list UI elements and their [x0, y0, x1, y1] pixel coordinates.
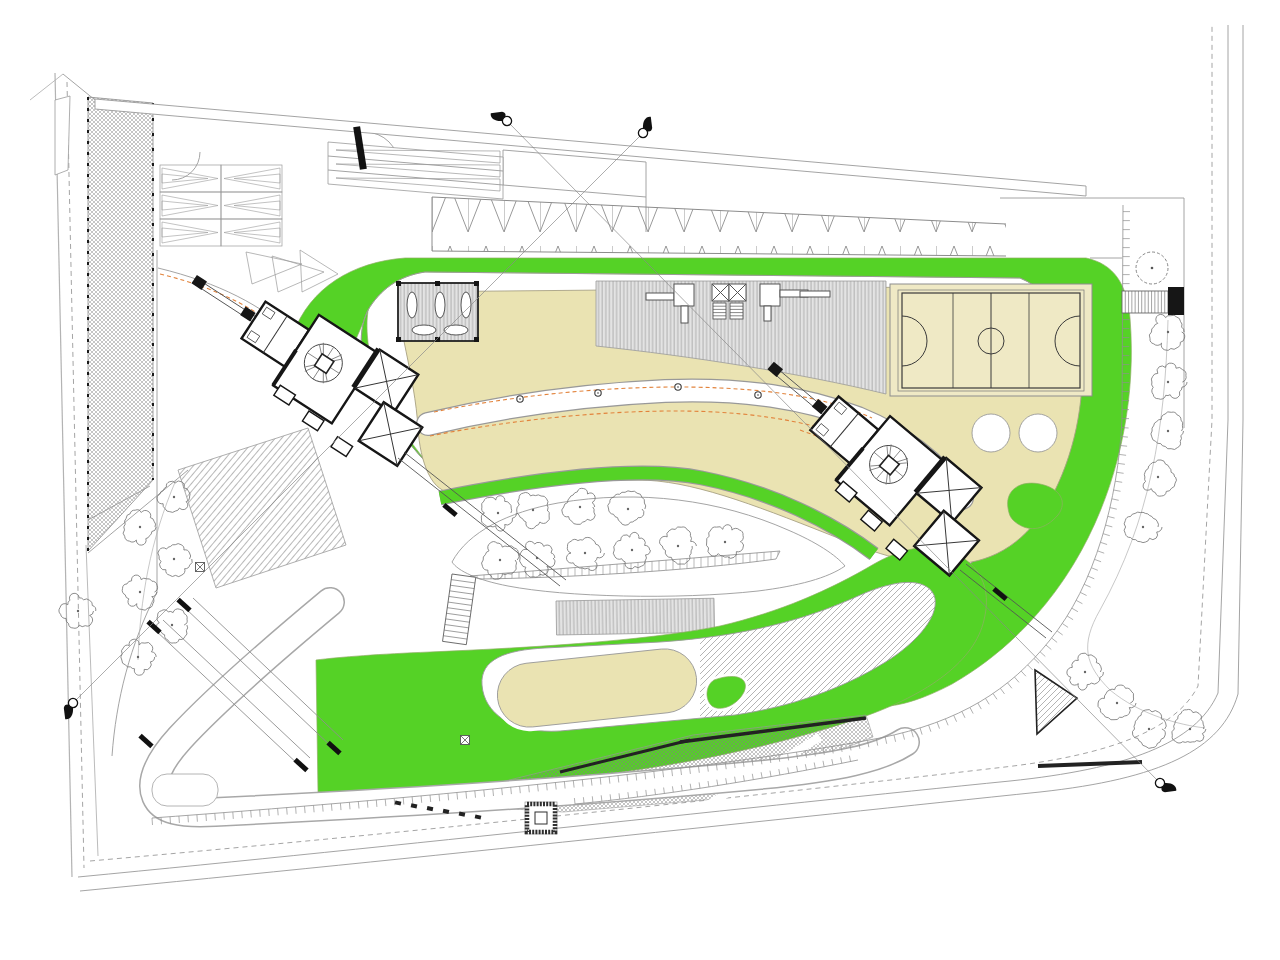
- x-mark-icon: [196, 563, 205, 572]
- wall-cap: [138, 734, 153, 748]
- site-plan-page: [0, 0, 1280, 960]
- retaining-wall: [1038, 762, 1142, 766]
- tree-symbol: [158, 544, 192, 577]
- stair-wall: [1168, 287, 1184, 315]
- canopy-deck: [556, 598, 715, 635]
- traffic-island: [55, 96, 70, 175]
- section-marker-icon: [634, 115, 658, 139]
- shade-structure-grid: [160, 165, 282, 246]
- wall-cap: [442, 503, 457, 517]
- site-plan-drawing: [0, 0, 1280, 960]
- pergola-seating: [396, 281, 479, 342]
- truss-pergola-band: [432, 197, 1006, 256]
- existing-hatched-building: [88, 97, 153, 551]
- hairpin-island: [152, 774, 218, 806]
- section-marker-icon: [489, 106, 513, 130]
- section-marker-icon: [1153, 774, 1177, 798]
- proposed-tree: [1136, 252, 1168, 284]
- tree-symbol: [1151, 363, 1187, 399]
- x-mark-icon: [461, 736, 470, 745]
- roof-panel: [503, 150, 646, 197]
- section-marker-icon: [58, 696, 82, 720]
- wall-cap: [293, 758, 308, 772]
- tree-symbol: [1143, 460, 1176, 496]
- column-marker: [525, 802, 557, 834]
- lens-stair: [443, 574, 476, 645]
- wall-cap: [176, 598, 191, 612]
- folded-plate-canopies: [246, 250, 338, 292]
- basketball-court: [890, 284, 1092, 396]
- ramp-triangle: [1035, 670, 1077, 734]
